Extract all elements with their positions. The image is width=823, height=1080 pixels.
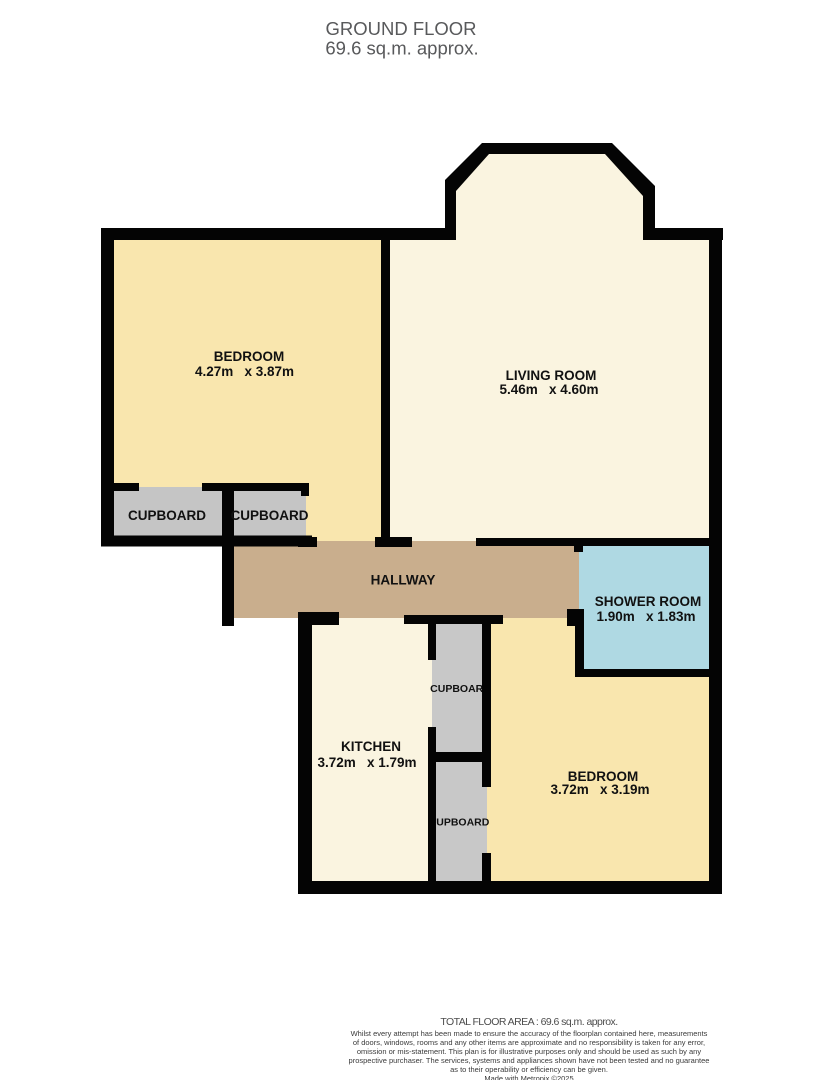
svg-text:5.46m x 4.60m: 5.46m x 4.60m — [499, 382, 598, 397]
svg-text:3.72m x 1.79m: 3.72m x 1.79m — [317, 755, 416, 770]
svg-text:TOTAL FLOOR AREA : 69.6 sq.m.: TOTAL FLOOR AREA : 69.6 sq.m. approx. — [440, 1016, 617, 1028]
svg-text:SHOWER ROOM: SHOWER ROOM — [595, 594, 702, 609]
svg-text:Whilst every attempt has been: Whilst every attempt has been made to en… — [351, 1029, 708, 1038]
svg-text:omission or mis-statement. Thi: omission or mis-statement. This plan is … — [357, 1047, 701, 1056]
svg-text:CUPBOARD: CUPBOARD — [429, 817, 490, 829]
svg-text:HALLWAY: HALLWAY — [371, 573, 436, 588]
svg-text:KITCHEN: KITCHEN — [341, 739, 401, 754]
svg-text:69.6 sq.m. approx.: 69.6 sq.m. approx. — [325, 38, 478, 59]
svg-text:as to their operability or eff: as to their operability or efficiency ca… — [450, 1065, 608, 1074]
svg-text:Made with Metropix ©2025: Made with Metropix ©2025 — [484, 1074, 573, 1080]
svg-text:of doors, windows, rooms and a: of doors, windows, rooms and any other i… — [353, 1038, 705, 1047]
svg-text:4.27m x 3.87m: 4.27m x 3.87m — [195, 364, 294, 379]
svg-text:1.90m x 1.83m: 1.90m x 1.83m — [596, 609, 695, 624]
svg-text:CUPBOARD: CUPBOARD — [128, 508, 206, 523]
svg-text:prospective purchaser. The ser: prospective purchaser. The services, sys… — [349, 1056, 710, 1065]
svg-text:3.72m x 3.19m: 3.72m x 3.19m — [550, 782, 649, 797]
svg-text:LIVING ROOM: LIVING ROOM — [506, 368, 597, 383]
svg-text:CUPBOARD: CUPBOARD — [230, 508, 308, 523]
svg-text:BEDROOM: BEDROOM — [214, 349, 285, 364]
svg-text:GROUND FLOOR: GROUND FLOOR — [325, 18, 476, 39]
